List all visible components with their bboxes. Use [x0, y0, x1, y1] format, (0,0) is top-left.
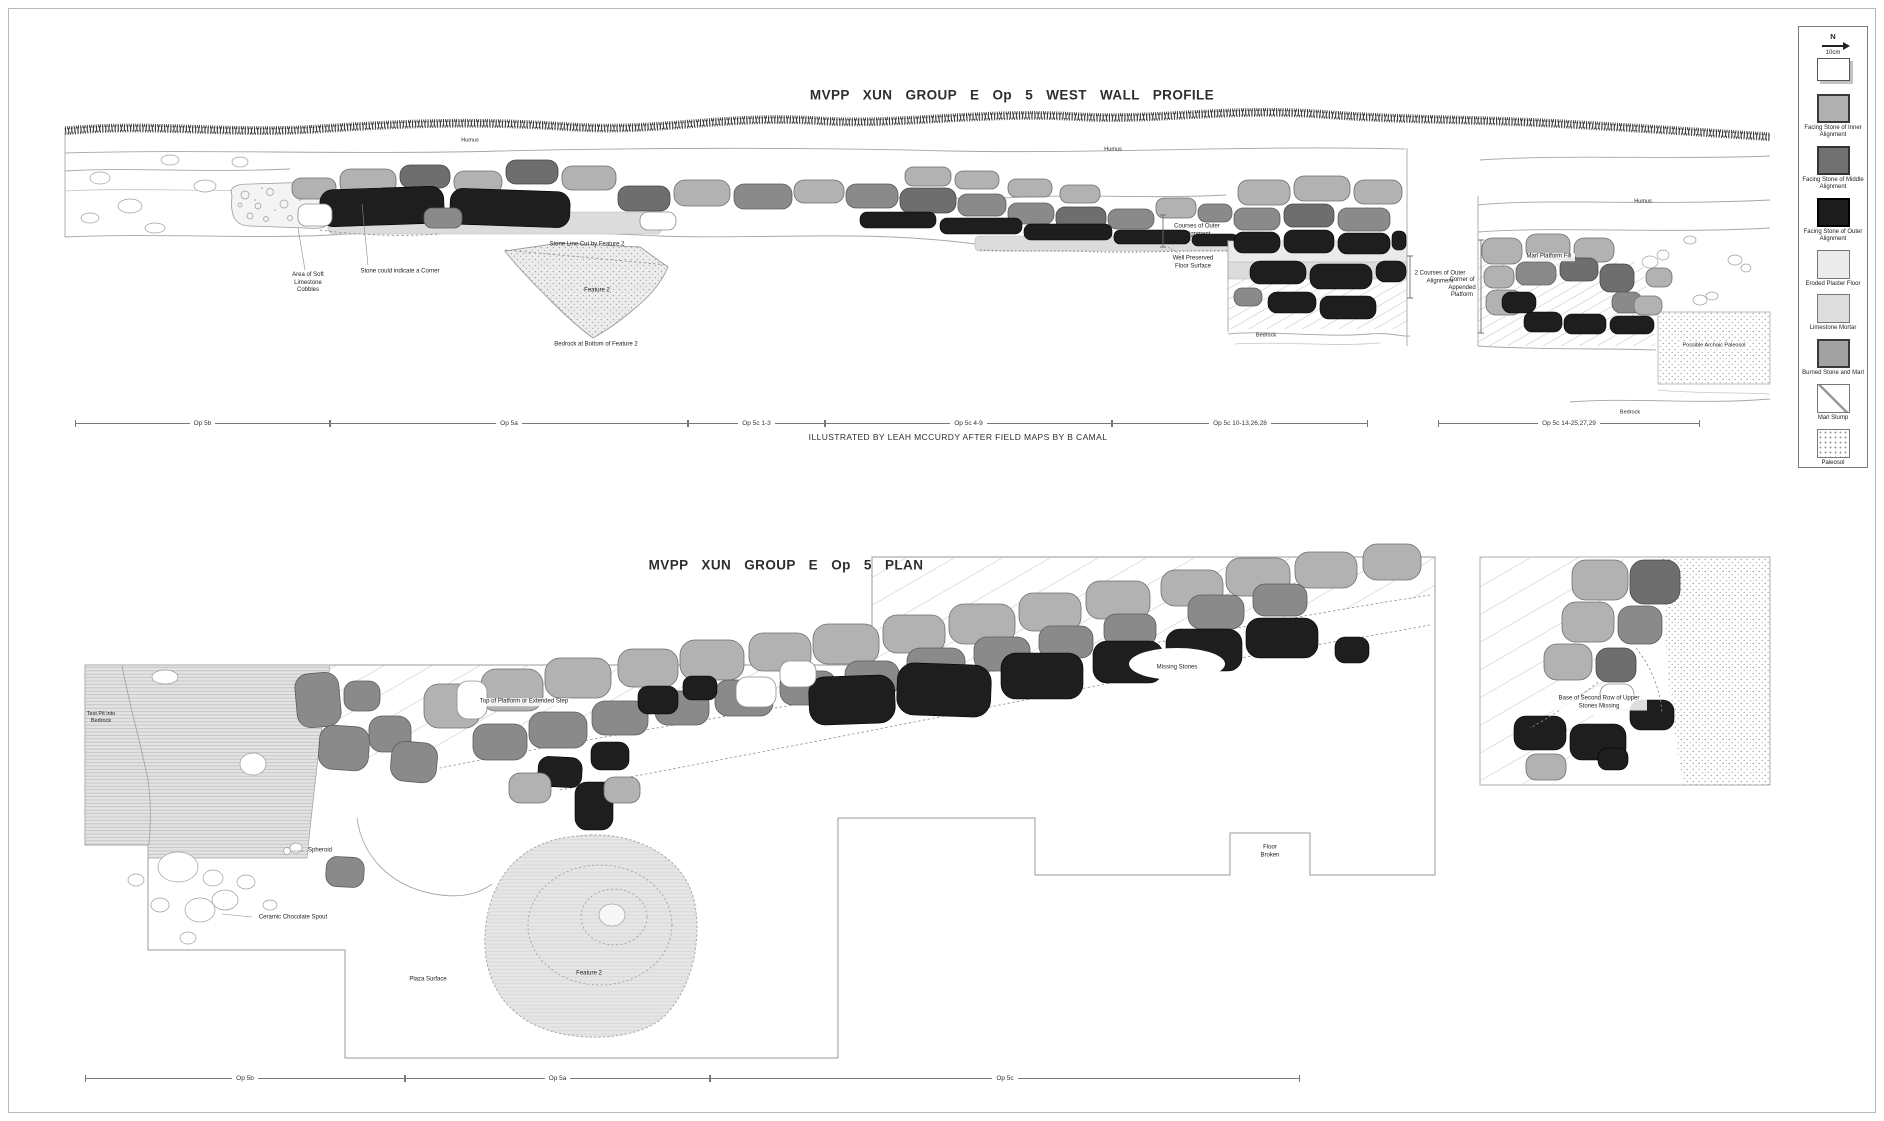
legend-item-middle-alignment: Facing Stone of Middle Alignment: [1802, 146, 1864, 191]
figure-artwork: [0, 0, 1884, 1121]
plaza-boundary-line: [357, 818, 492, 896]
legend-swatch-marl-slump: [1817, 384, 1850, 413]
label-platform-top: Top of Platform or Extended Step: [478, 698, 570, 706]
scale-label: Op 5a: [496, 420, 522, 427]
ground-surface-grass: [65, 109, 1770, 140]
label-feature-2-plan: Feature 2: [576, 970, 602, 978]
legend-item-marl-slump: Marl Slump: [1802, 384, 1864, 422]
label-chocolate-spout: Ceramic Chocolate Spout: [259, 914, 327, 922]
legend-item-label: Facing Stone of Middle Alignment: [1802, 177, 1864, 191]
profile-title: MVPP XUN GROUP E Op 5 WEST WALL PROFILE: [810, 88, 1214, 103]
legend-item-outer-alignment: Facing Stone of Outer Alignment: [1802, 198, 1864, 243]
legend-item-burned-stone: Burned Stone and Marl: [1802, 339, 1864, 377]
scale-label: Op 5b: [190, 420, 216, 427]
right-profile-section: [1478, 196, 1770, 402]
north-arrow-icon: [1822, 45, 1844, 47]
scattered-cobbles: [81, 155, 248, 233]
legend-item-label: Eroded Plaster Floor: [1802, 281, 1864, 288]
label-corner-stone: Stone could indicate a Corner: [360, 268, 439, 276]
label-floor-surface: Well Preserved Floor Surface: [1166, 256, 1220, 271]
label-test-pit: Test Pit into Bedrock: [83, 711, 119, 725]
plan-drawing: [85, 544, 1770, 1058]
label-corner-appended: Corner of Appended Platform: [1442, 277, 1482, 300]
legend-item-inner-alignment: Facing Stone of Inner Alignment: [1802, 94, 1864, 139]
label-bedrock-right: Bedrock: [1620, 410, 1640, 417]
label-floor-broken: Floor Broken: [1253, 845, 1287, 860]
figure-page: MVPP XUN GROUP E Op 5 WEST WALL PROFILE …: [0, 0, 1884, 1121]
plan-inset: [1480, 557, 1770, 785]
label-humus: Humus: [461, 138, 478, 145]
legend-item-label: Limestone Mortar: [1802, 325, 1864, 332]
scale-label: Op 5c 1-3: [738, 420, 775, 427]
legend-swatch-inner-alignment: [1817, 94, 1850, 123]
scale-label: Op 5c 10-13,26,28: [1209, 420, 1271, 427]
north-label: N: [1830, 32, 1835, 41]
attribution-text: ILLUSTRATED BY LEAH MCCURDY AFTER FIELD …: [809, 432, 1108, 442]
legend-item-plaster-floor: Eroded Plaster Floor: [1802, 250, 1864, 288]
scale-10cm-box: [1817, 58, 1850, 81]
legend-swatch-plaster-floor: [1817, 250, 1850, 279]
appended-platform-section: [1228, 148, 1410, 346]
plan-title: MVPP XUN GROUP E Op 5 PLAN: [649, 558, 924, 573]
legend-swatch-burned-stone: [1817, 339, 1850, 368]
label-inset-note: Base of Second Row of Upper Stones Missi…: [1551, 696, 1647, 711]
legend-item-label: Paleosol: [1802, 460, 1864, 467]
label-humus: Humus: [1634, 199, 1651, 206]
spheroid-marker: [284, 848, 291, 855]
legend-panel: N 10cm Facing Stone of Inner Alignment F…: [1798, 26, 1868, 468]
label-stone-line-cut: Stone Line Cut by Feature 2: [549, 241, 624, 249]
legend-swatch-middle-alignment: [1817, 146, 1850, 175]
label-archaic-paleosol: Possible Archaic Paleosol: [1681, 343, 1748, 350]
plan-stone-rows: [294, 544, 1421, 888]
label-humus: Humus: [1104, 147, 1121, 154]
feature-2-mound: [485, 835, 697, 1037]
scale-label: Op 5c: [992, 1075, 1017, 1082]
legend-swatch-outer-alignment: [1817, 198, 1850, 227]
label-bedrock-platform: Bedrock: [1256, 333, 1276, 340]
legend-item-label: Facing Stone of Outer Alignment: [1802, 229, 1864, 243]
label-spheroid: Spheroid: [308, 847, 332, 855]
scale-10cm-label: 10cm: [1826, 50, 1841, 56]
label-soft-limestone-cobbles: Area of Soft Limestone Cobbles: [284, 272, 332, 295]
label-bedrock-feature-2: Bedrock at Bottom of Feature 2: [554, 341, 637, 349]
label-missing-stones: Missing Stones: [1155, 664, 1200, 672]
legend-swatch-paleosol: [1817, 429, 1850, 458]
scale-label: Op 5b: [232, 1075, 258, 1082]
scale-label: Op 5c 14-25,27,29: [1538, 420, 1600, 427]
scale-label: Op 5a: [545, 1075, 571, 1082]
profile-drawing: [65, 109, 1770, 402]
label-marl-platform-fill: Marl Platform Fill: [1523, 253, 1575, 261]
legend-item-limestone-mortar: Limestone Mortar: [1802, 294, 1864, 332]
legend-item-label: Facing Stone of Inner Alignment: [1802, 125, 1864, 139]
legend-item-label: Marl Slump: [1802, 415, 1864, 422]
label-courses-outer: Courses of Outer Alignment: [1168, 224, 1226, 239]
legend-item-paleosol: Paleosol: [1802, 429, 1864, 467]
label-feature-2-profile: Feature 2: [584, 287, 610, 295]
legend-swatch-limestone-mortar: [1817, 294, 1850, 323]
scale-label: Op 5c 4-9: [950, 420, 987, 427]
label-plaza-surface: Plaza Surface: [409, 976, 446, 984]
legend-item-label: Burned Stone and Marl: [1802, 370, 1864, 377]
test-pit-area: [85, 665, 330, 858]
